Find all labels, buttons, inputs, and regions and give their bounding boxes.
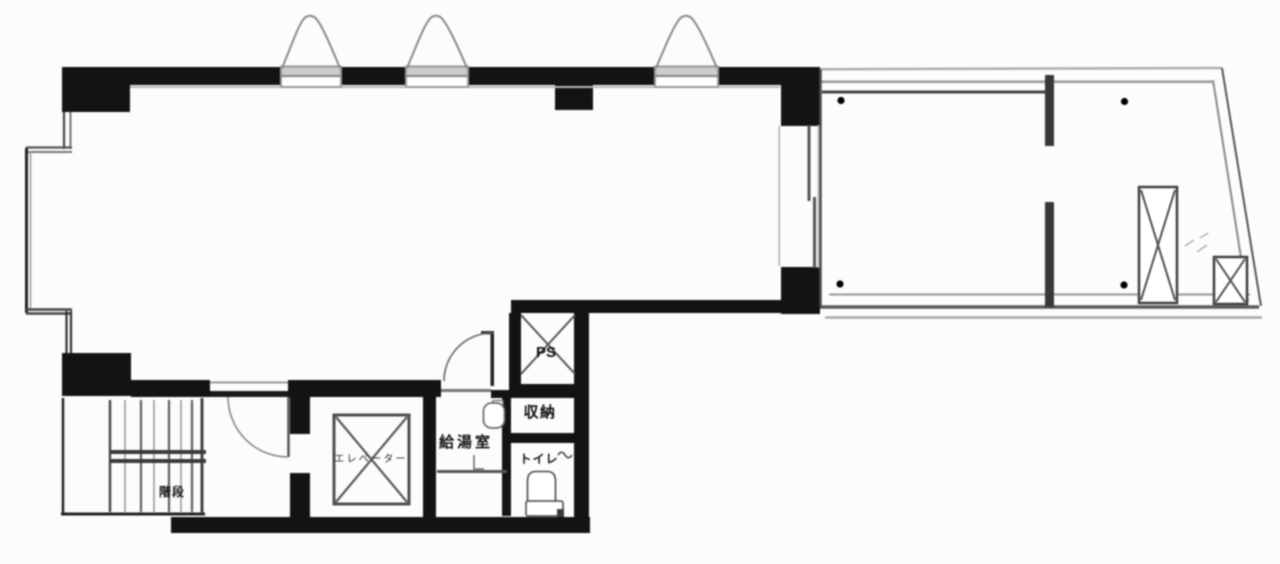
svg-text:トイレ: トイレ [519,452,558,466]
svg-text:階段: 階段 [159,484,185,499]
svg-text:給湯室: 給湯室 [439,433,493,451]
svg-text:収納: 収納 [523,403,556,421]
svg-text:PS: PS [536,344,556,361]
svg-text:エレベーター: エレベーター [334,453,407,465]
